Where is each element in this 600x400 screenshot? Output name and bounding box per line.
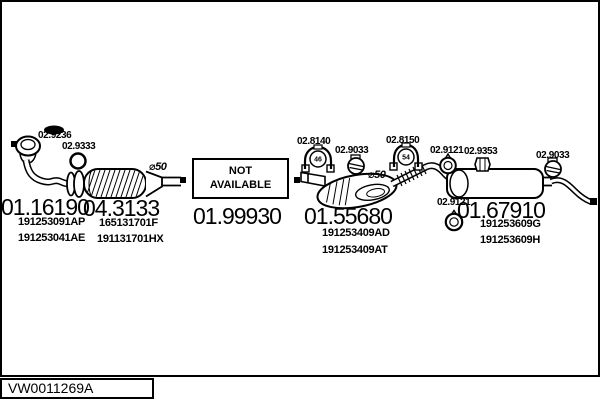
clamp-icon-middle <box>348 155 364 174</box>
rubber-mount-icon <box>475 158 490 171</box>
gasket-label: 02.9236 <box>38 131 71 141</box>
clamp-8140-label: 02.8140 <box>297 137 330 147</box>
cat-oe-number: 165131701F <box>99 218 158 229</box>
tailpipe-end-marker <box>590 198 597 205</box>
hanger-ring-front-icon <box>440 154 456 173</box>
clamp-size-46: 46 <box>314 157 322 164</box>
drawing-code: VW0011269A <box>8 380 93 396</box>
clamp-8150-label: 02.8150 <box>386 136 419 146</box>
cat-pipe-diameter-label: ⌀50 <box>149 162 166 173</box>
seal-ring-icon <box>71 154 86 169</box>
clamp-54-icon: 54 <box>390 143 422 170</box>
middle-silencer-oe-number: 191253409AT <box>322 245 388 256</box>
middle-silencer-part-number[interactable]: 01.55680 <box>304 205 392 228</box>
middle-silencer-oe-number: 191253409AD <box>322 228 390 239</box>
clamp-46-icon: 46 <box>302 145 334 172</box>
clamp-9033-mid-label: 02.9033 <box>335 146 368 156</box>
not-available-line1: NOT <box>229 166 252 177</box>
seal-ring-label: 02.9333 <box>62 142 95 152</box>
not-available-line2: AVAILABLE <box>210 180 271 191</box>
exhaust-parts-diagram-page: 46 54 <box>0 0 600 400</box>
cat-oe-number: 191131701HX <box>97 234 163 245</box>
clamp-9033-tail-label: 02.9033 <box>536 151 569 161</box>
not-available-box: NOT AVAILABLE <box>192 158 289 199</box>
rear-silencer-oe-number: 191253609G <box>480 219 541 230</box>
front-pipe-oe-number: 191253091AP <box>18 217 85 228</box>
hanger-front-label: 02.9121 <box>430 146 463 156</box>
drawing-code-box: VW0011269A <box>0 378 154 399</box>
joint-marker <box>294 177 300 183</box>
mid-pipe-diameter-label: ⌀50 <box>368 170 385 181</box>
rubber-mount-label: 02.9353 <box>464 147 497 157</box>
rear-silencer-oe-number: 191253609H <box>480 235 540 246</box>
centre-section-part-number[interactable]: 01.99930 <box>193 205 281 228</box>
joint-marker <box>180 177 186 183</box>
clamp-size-54: 54 <box>402 155 410 162</box>
front-pipe-oe-number: 191253041AE <box>18 233 85 244</box>
